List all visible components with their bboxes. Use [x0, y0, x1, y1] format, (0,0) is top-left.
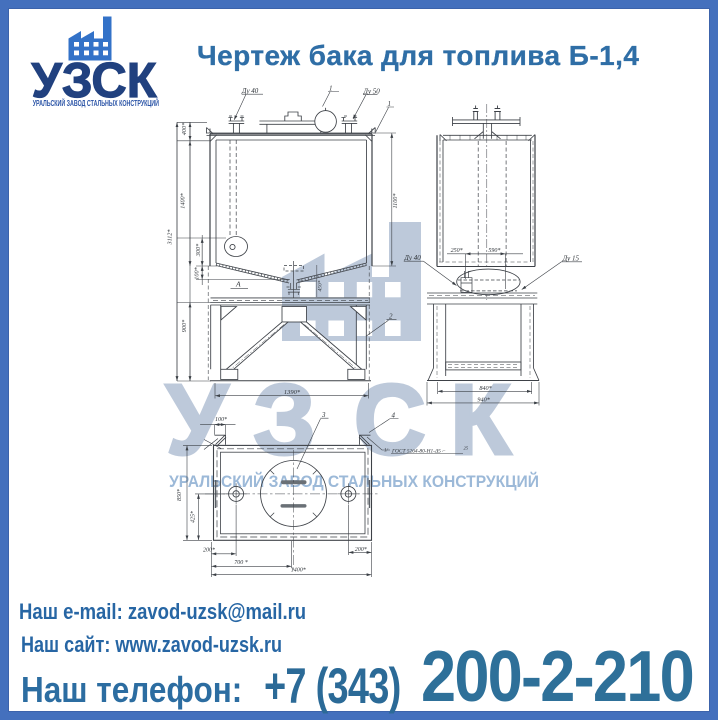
svg-text:Ду 40: Ду 40 — [403, 254, 421, 262]
svg-text:1100*: 1100* — [392, 193, 399, 209]
svg-text:250*: 250* — [451, 248, 463, 254]
svg-text:100*: 100* — [215, 417, 227, 423]
svg-text:100*: 100* — [194, 266, 201, 279]
svg-text:Ду 15: Ду 15 — [562, 255, 580, 263]
svg-text:25: 25 — [464, 446, 469, 451]
svg-text:940*: 940* — [477, 396, 490, 403]
svg-text:3: 3 — [321, 411, 326, 419]
svg-text:ГОСТ 5264-80-Н1-Δ5 ⌐: ГОСТ 5264-80-Н1-Δ5 ⌐ — [391, 449, 446, 455]
svg-text:4: 4 — [392, 411, 396, 419]
svg-text:200*: 200* — [203, 548, 215, 554]
svg-text:700 *: 700 * — [234, 560, 248, 566]
svg-text:УРАЛЬСКИЙ ЗАВОД СТАЛЬНЫХ КОНСТ: УРАЛЬСКИЙ ЗАВОД СТАЛЬНЫХ КОНСТРУКЦИЙ — [169, 472, 539, 491]
svg-text:2: 2 — [389, 313, 393, 321]
svg-text:590*: 590* — [488, 248, 500, 254]
svg-text:900*: 900* — [181, 319, 188, 332]
svg-text:Ду 40: Ду 40 — [241, 87, 259, 95]
svg-text:1400*: 1400* — [180, 192, 187, 208]
svg-text:200*: 200* — [355, 547, 367, 553]
svg-text:300*: 300* — [195, 243, 202, 257]
svg-text:850*: 850* — [177, 489, 183, 501]
svg-text:3112*: 3112* — [167, 229, 174, 246]
svg-text:1400*: 1400* — [291, 567, 306, 574]
svg-text:840*: 840* — [479, 385, 492, 392]
svg-text:1/: 1/ — [384, 449, 389, 454]
svg-text:А: А — [235, 280, 241, 289]
svg-text:Ду 50: Ду 50 — [363, 88, 381, 96]
svg-text:450*: 450* — [317, 280, 324, 291]
svg-text:425*: 425* — [190, 511, 197, 523]
svg-text:400*: 400* — [181, 122, 188, 135]
svg-text:1390*: 1390* — [284, 389, 301, 396]
